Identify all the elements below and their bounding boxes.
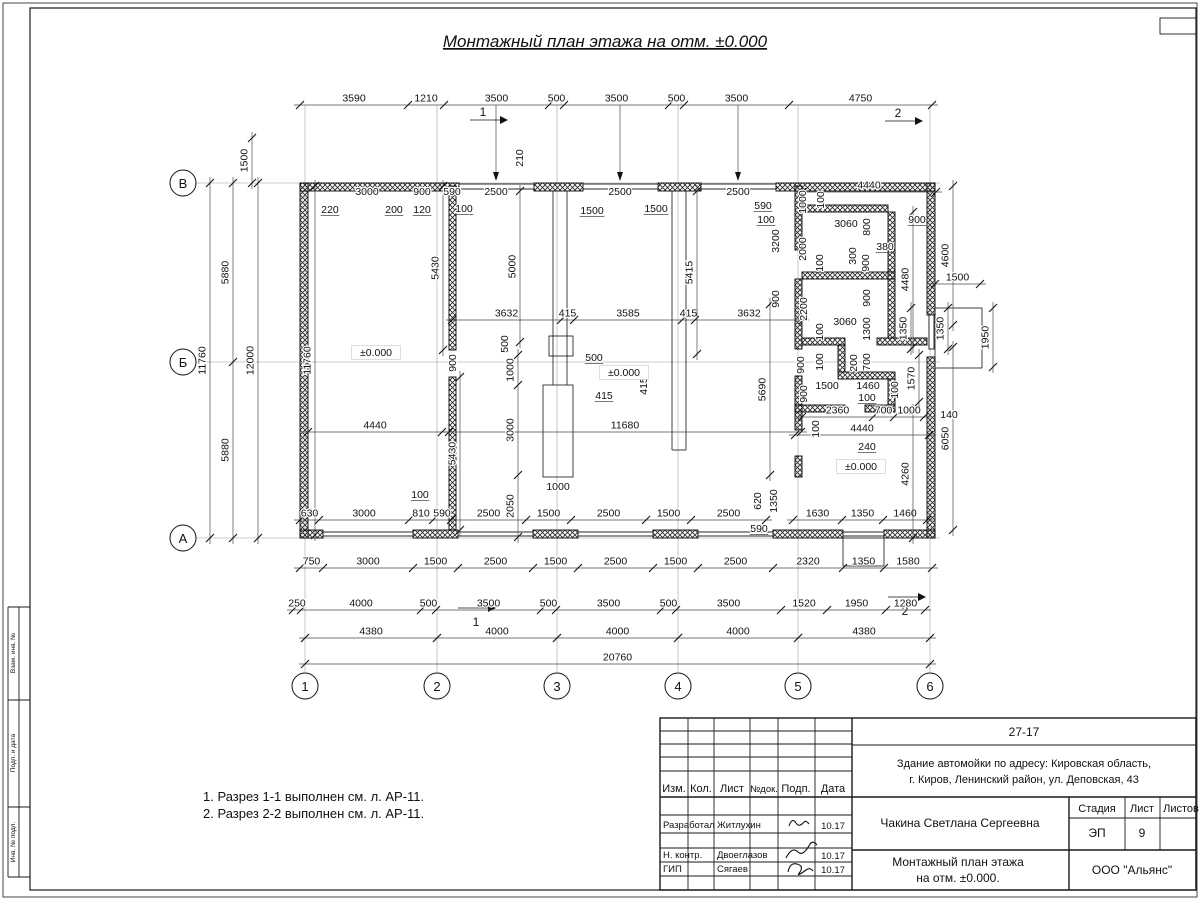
dim-label: 1350 [852,556,876,568]
dim-label: 2500 [597,508,621,520]
dim-label: 6050 [940,427,952,451]
dim-label: 500 [420,598,438,610]
dim-label: 2500 [484,556,508,568]
dim-label: ±0.000 [360,347,392,359]
dim-label: 4000 [606,626,630,638]
axis-row-label: В [179,176,188,191]
dim-label: 4480 [900,268,912,292]
dim-label: 4600 [940,244,952,268]
dim-label: 1210 [414,93,438,105]
sheet-label: Лист [1130,803,1154,815]
dim-label: 1630 [806,508,830,520]
axis-col-label: 2 [433,679,440,694]
row-role: Разработал [663,820,715,831]
doc-number: 27-17 [1009,725,1040,739]
dim-label: 630 [301,508,319,520]
dim-label: 4440 [850,423,874,435]
dim-label: 4440 [857,180,881,192]
dim-label: 3632 [495,308,519,320]
dim-label: 1500 [815,380,839,392]
dim-label: 3200 [770,229,782,253]
address-line2: г. Киров, Ленинский район, ул. Деповская… [909,774,1139,786]
floor-plan-svg: Взам. инв. № Подп. и дата Инв. № подл. М… [0,0,1200,900]
dim-label: 1280 [894,598,918,610]
dim-label: 1300 [861,317,873,341]
window-arrows [493,105,741,181]
dim-label: 590 [754,200,772,212]
dim-label: 900 [795,356,807,374]
dim-label: 220 [321,204,339,216]
notes: 1. Разрез 1-1 выполнен см. л. АР-11. 2. … [203,789,424,821]
dim-label: 1460 [856,380,880,392]
dim-label: 900 [447,354,459,372]
dim-label: 3000 [352,508,376,520]
dim-label: 2050 [505,494,517,518]
dim-label: 2500 [604,556,628,568]
dim-label: 100 [858,392,876,404]
row-name: Житлухин [717,820,761,831]
dim-label: 1500 [424,556,448,568]
row-role: Н. контр. [663,850,702,861]
drawing-title-line2: на отм. ±0.000. [916,871,999,885]
dim-label: 5415 [684,261,696,285]
author-name: Чакина Светлана Сергеевна [880,816,1039,830]
dim-label: 1500 [580,205,604,217]
dim-label: 415 [559,308,577,320]
dim-label: 1950 [980,326,992,350]
dim-label: 100 [814,254,826,272]
dim-label: 900 [908,214,926,226]
dim-label: 900 [860,254,872,272]
dim-label: 2200 [798,297,810,321]
dim-label: 100 [889,381,901,399]
dim-label: 4000 [726,626,750,638]
dim-label: 3000 [505,418,517,442]
corner-stamp-box [1160,18,1196,34]
dim-label: 2500 [608,186,632,198]
dim-label: 4750 [849,93,873,105]
dim-label: 1500 [239,149,251,173]
dim-label: 590 [443,186,461,198]
dim-label: 4380 [852,626,876,638]
dim-label: ±0.000 [845,461,877,473]
dim-label: 2500 [724,556,748,568]
dim-label: 1950 [845,598,869,610]
dim-label: 2320 [796,556,820,568]
title-block: Изм. Кол. Лист №док. Подп. Дата Разработ… [660,718,1199,890]
col-data: Дата [821,783,846,795]
dim-label: 1000 [546,481,570,493]
dim-label: 100 [815,191,827,209]
dim-label: 1580 [896,556,920,568]
dim-label: 900 [798,385,810,403]
dim-label: 3060 [834,218,858,230]
dim-label: 3500 [725,93,749,105]
svg-text:1: 1 [480,105,487,119]
dim-label: 5430 [447,442,459,466]
row-date: 10.17 [821,821,845,832]
dim-label: 100 [810,420,822,438]
walls [300,183,935,538]
sheets-label: Листов [1163,803,1199,815]
dim-label: 2360 [826,405,850,417]
dim-label: 900 [413,186,431,198]
dim-label: 210 [514,149,526,167]
dim-label: 3500 [485,93,509,105]
dim-label: 700 [875,405,893,417]
dim-label: 500 [540,598,558,610]
dim-label: 415 [680,308,698,320]
dim-label: 1350 [768,489,780,513]
dim-label: 1500 [644,203,668,215]
dim-label: 500 [585,352,603,364]
dim-label: 3590 [342,93,366,105]
dim-label: 2500 [477,508,501,520]
dim-label: 1570 [906,367,918,391]
dim-label: 380 [876,241,894,253]
axis-col-label: 6 [926,679,933,694]
dim-label: 2500 [717,508,741,520]
dim-label: 1000 [797,190,809,214]
dim-label: 250 [288,598,306,610]
dim-label: 4000 [349,598,373,610]
dim-label: 2500 [726,186,750,198]
stage-value: ЭП [1088,826,1105,840]
col-list: Лист [720,783,744,795]
dim-label: 3000 [355,186,379,198]
dim-label: 5430 [430,256,442,280]
dim-label: 12000 [245,346,257,375]
axis-col-label: 1 [301,679,308,694]
dim-label: 20760 [603,652,632,664]
dim-label: 1000 [897,405,921,417]
dim-label: ±0.000 [608,367,640,379]
dim-label: 810 [412,508,430,520]
dim-label: 5880 [220,261,232,285]
dim-label: 3632 [737,308,761,320]
stamp-label: Подп. и дата [10,733,17,772]
row-date: 10.17 [821,851,845,862]
drawing-sheet: Взам. инв. № Подп. и дата Инв. № подл. М… [0,0,1200,900]
dim-label: 1500 [657,508,681,520]
dim-label: 500 [499,335,511,353]
col-izm: Изм. [662,783,686,795]
address-line1: Здание автомойки по адресу: Кировская об… [897,758,1151,770]
left-stamp-column: Взам. инв. № Подп. и дата Инв. № подл. [8,607,30,877]
dim-label: 11760 [197,346,209,375]
page-title: Монтажный план этажа на отм. ±0.000 [443,32,768,51]
dim-label: 620 [752,492,764,510]
col-kol: Кол. [690,783,712,795]
drawing-title-line1: Монтажный план этажа [892,855,1024,869]
dim-label: 1000 [505,358,517,382]
dim-label: 11760 [302,346,314,375]
axis-col-label: 5 [794,679,801,694]
axis-bubbles: В Б А 1 2 3 4 5 6 [170,170,943,699]
dim-label: 500 [660,598,678,610]
company-name: ООО "Альянс" [1092,863,1172,877]
note-line: 2. Разрез 2-2 выполнен см. л. АР-11. [203,806,424,821]
dim-label: 5880 [220,438,232,462]
row-role: ГИП [663,864,682,875]
dim-label: 1500 [946,272,970,284]
dim-label: 1500 [664,556,688,568]
dim-label: 120 [413,204,431,216]
dim-label: 4000 [485,626,509,638]
col-podp: Подп. [781,783,810,795]
dim-label: 200 [385,204,403,216]
dim-label: 1350 [851,508,875,520]
dim-label: 4440 [363,420,387,432]
dim-label: 1500 [537,508,561,520]
dim-label: 100 [814,323,826,341]
dim-label: 300 [847,247,859,265]
dim-label: 11680 [611,420,640,432]
dim-label: 700 [861,353,873,371]
dim-label: 4380 [359,626,383,638]
svg-text:1: 1 [473,615,480,629]
axis-col-label: 4 [674,679,681,694]
dim-label: 590 [433,508,451,520]
note-line: 1. Разрез 1-1 выполнен см. л. АР-11. [203,789,424,804]
dim-label: 900 [861,289,873,307]
dim-label: 100 [814,353,826,371]
dim-label: 3500 [717,598,741,610]
dim-label: 240 [858,441,876,453]
section-mark-2-top: 2 [885,106,923,125]
col-ndoc: №док. [750,784,778,795]
dim-label: 1500 [544,556,568,568]
dim-label: 3585 [616,308,640,320]
section-mark-1-top: 1 [470,105,508,124]
dim-label: 590 [750,523,768,535]
floor-channel [543,191,686,477]
dim-label: 750 [303,556,321,568]
sheet-value: 9 [1139,826,1146,840]
dimensions: 3590121035005003500500350047501176058805… [197,93,998,669]
row-name: Двоеглазов [717,850,768,861]
dim-label: 800 [861,218,873,236]
dim-label: 2500 [484,186,508,198]
dim-label: 500 [668,93,686,105]
dim-label: 900 [770,290,782,308]
row-date: 10.17 [821,865,845,876]
dim-label: 100 [757,214,775,226]
dim-label: 1350 [935,317,947,341]
dim-label: 5690 [757,378,769,402]
axis-row-label: Б [179,355,188,370]
stamp-label: Инв. № подл. [10,822,17,863]
dim-label: 1350 [898,317,910,341]
dim-label: 5000 [507,255,519,279]
dim-label: 2000 [797,237,809,261]
svg-text:2: 2 [895,106,902,120]
axis-row-label: А [179,531,188,546]
dim-label: 500 [548,93,566,105]
row-name: Сягаев [717,864,748,875]
dim-label: 3060 [833,316,857,328]
dim-label: 100 [455,203,473,215]
stage-label: Стадия [1078,803,1116,815]
dim-label: 3000 [356,556,380,568]
dim-label: 1520 [792,598,816,610]
dim-label: 4260 [900,462,912,486]
dim-label: 100 [411,489,429,501]
axis-col-label: 3 [553,679,560,694]
dim-label: 3500 [605,93,629,105]
dim-label: 415 [595,390,613,402]
stamp-label: Взам. инв. № [10,633,17,673]
dim-label: 3500 [477,598,501,610]
dim-label: 200 [848,354,860,372]
dim-label: 3500 [597,598,621,610]
dim-label: 140 [940,409,958,421]
